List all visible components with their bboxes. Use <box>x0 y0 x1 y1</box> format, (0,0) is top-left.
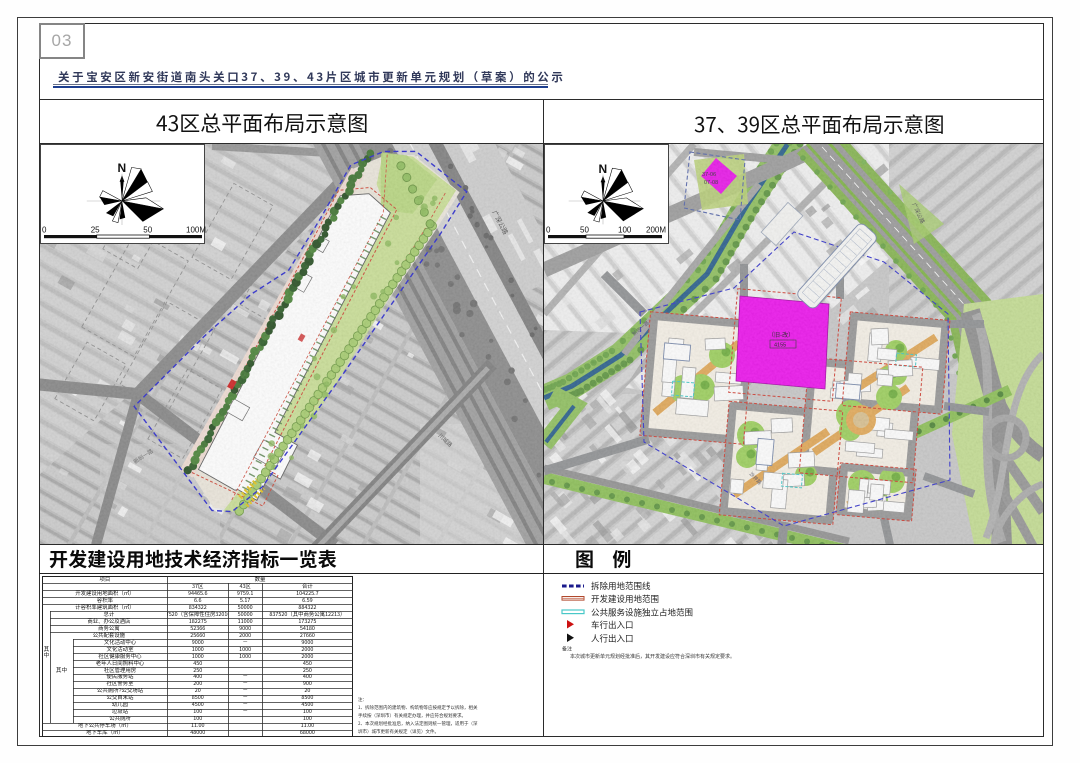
svg-text:公共服务设施独立占地范围: 公共服务设施独立占地范围 <box>591 607 693 619</box>
svg-text:N: N <box>599 162 608 176</box>
svg-text:人行出入口: 人行出入口 <box>591 633 634 645</box>
svg-text:100: 100 <box>618 226 632 235</box>
svg-text:拆除用地范围线: 拆除用地范围线 <box>591 580 651 592</box>
svg-text:车行出入口: 车行出入口 <box>591 619 634 631</box>
svg-text:开发建设用地范围: 开发建设用地范围 <box>591 593 659 605</box>
svg-text:0: 0 <box>546 226 551 235</box>
svg-text:备注: 备注 <box>562 646 572 653</box>
svg-text:200M: 200M <box>646 226 666 235</box>
svg-text:25: 25 <box>91 226 100 235</box>
svg-text:0: 0 <box>42 226 47 235</box>
svg-text:本次城市更新单元规划经批准后，其开发建设应符合深圳市有关规定: 本次城市更新单元规划经批准后，其开发建设应符合深圳市有关规定要求。 <box>570 653 735 660</box>
svg-text:N: N <box>118 161 127 175</box>
svg-text:50: 50 <box>143 226 152 235</box>
svg-text:50: 50 <box>580 226 589 235</box>
svg-text:100M: 100M <box>186 226 206 235</box>
